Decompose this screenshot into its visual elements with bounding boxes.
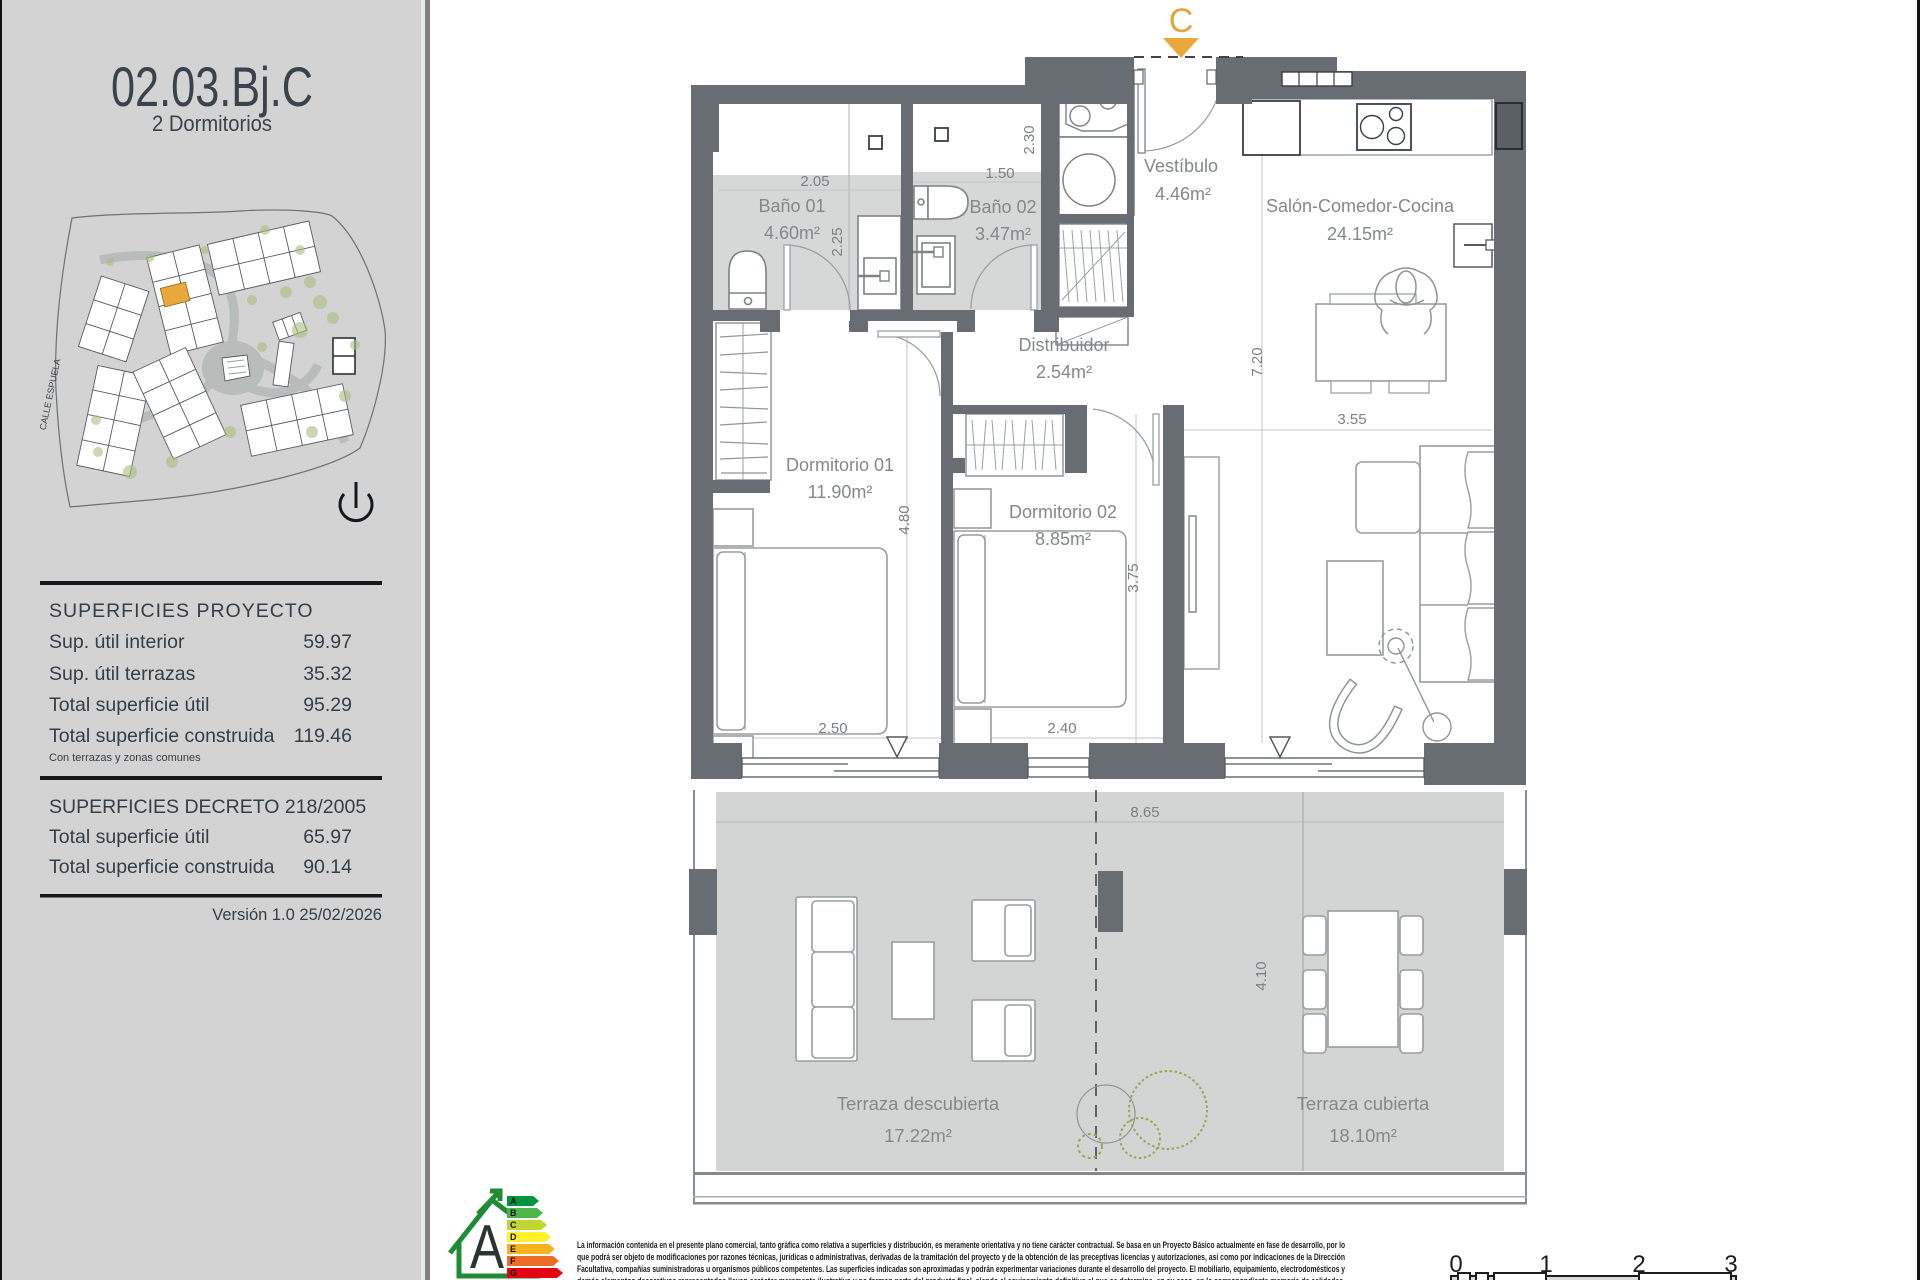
- svg-text:Baño 01: Baño 01: [758, 196, 825, 216]
- svg-text:4.60m²: 4.60m²: [764, 223, 820, 243]
- svg-text:B: B: [510, 1208, 517, 1218]
- svg-text:La información contenida en el: La información contenida en el presente …: [577, 1240, 1345, 1250]
- svg-text:C: C: [510, 1220, 517, 1230]
- svg-text:Terraza cubierta: Terraza cubierta: [1297, 1093, 1430, 1114]
- svg-text:11.90m²: 11.90m²: [808, 482, 873, 502]
- svg-text:Dormitorio 01: Dormitorio 01: [786, 455, 894, 475]
- svg-text:SUPERFICIES PROYECTO: SUPERFICIES PROYECTO: [49, 600, 314, 622]
- svg-text:G: G: [510, 1268, 517, 1278]
- svg-text:2.25: 2.25: [829, 227, 846, 256]
- svg-text:que podrá ser objeto de modifi: que podrá ser objeto de modificaciones p…: [577, 1252, 1345, 1262]
- svg-text:65.97: 65.97: [303, 826, 352, 848]
- svg-text:C: C: [1169, 2, 1194, 40]
- svg-text:Salón-Comedor-Cocina: Salón-Comedor-Cocina: [1266, 196, 1455, 216]
- svg-text:90.14: 90.14: [303, 856, 352, 878]
- svg-text:A: A: [510, 1196, 517, 1206]
- svg-text:A: A: [470, 1213, 505, 1280]
- svg-text:17.22m²: 17.22m²: [884, 1125, 952, 1146]
- svg-text:SUPERFICIES DECRETO 218/2005: SUPERFICIES DECRETO 218/2005: [49, 796, 366, 818]
- svg-text:1.50: 1.50: [985, 165, 1014, 182]
- svg-text:Total superficie construida: Total superficie construida: [49, 725, 275, 747]
- svg-text:Baño 02: Baño 02: [969, 197, 1036, 217]
- svg-text:4.46m²: 4.46m²: [1155, 184, 1211, 204]
- svg-text:2.50: 2.50: [818, 720, 847, 737]
- svg-text:119.46: 119.46: [294, 725, 352, 747]
- svg-text:Vestíbulo: Vestíbulo: [1144, 156, 1218, 176]
- svg-text:3.75: 3.75: [1125, 563, 1142, 592]
- svg-text:Versión 1.0 25/02/2026: Versión 1.0 25/02/2026: [212, 906, 382, 924]
- svg-text:59.97: 59.97: [303, 631, 352, 653]
- svg-text:Total superficie útil: Total superficie útil: [49, 826, 209, 848]
- svg-text:4.80: 4.80: [896, 505, 913, 534]
- svg-text:2.30: 2.30: [1021, 125, 1038, 154]
- svg-text:demás elementos decorativos re: demás elementos decorativos representado…: [577, 1276, 1345, 1280]
- svg-text:Dormitorio 02: Dormitorio 02: [1009, 502, 1117, 522]
- svg-text:35.32: 35.32: [303, 663, 352, 685]
- svg-text:7.20: 7.20: [1249, 347, 1266, 376]
- svg-text:Con terrazas y zonas comunes: Con terrazas y zonas comunes: [49, 752, 201, 764]
- svg-text:3.47m²: 3.47m²: [975, 224, 1031, 244]
- svg-text:2.40: 2.40: [1047, 720, 1076, 737]
- svg-text:Facultativa, compañías suminis: Facultativa, compañías suministradoras u…: [577, 1264, 1346, 1274]
- svg-text:Total superficie construida: Total superficie construida: [49, 856, 275, 878]
- svg-text:D: D: [510, 1232, 517, 1242]
- svg-text:18.10m²: 18.10m²: [1329, 1125, 1397, 1146]
- svg-text:8.85m²: 8.85m²: [1035, 529, 1091, 549]
- svg-text:4.10: 4.10: [1253, 961, 1270, 990]
- svg-text:2.05: 2.05: [800, 173, 829, 190]
- svg-text:3.55: 3.55: [1337, 411, 1366, 428]
- svg-text:24.15m²: 24.15m²: [1327, 224, 1393, 244]
- svg-text:95.29: 95.29: [303, 694, 352, 716]
- svg-text:Sup. útil terrazas: Sup. útil terrazas: [49, 663, 196, 685]
- svg-text:02.03.Bj.C: 02.03.Bj.C: [111, 55, 313, 118]
- svg-text:8.65: 8.65: [1130, 804, 1159, 821]
- svg-text:E: E: [510, 1244, 516, 1254]
- svg-text:Terraza descubierta: Terraza descubierta: [837, 1093, 1000, 1114]
- svg-text:2.54m²: 2.54m²: [1036, 362, 1092, 382]
- svg-text:F: F: [510, 1256, 516, 1266]
- svg-text:2 Dormitorios: 2 Dormitorios: [152, 111, 272, 136]
- svg-text:Total superficie útil: Total superficie útil: [49, 694, 209, 716]
- svg-text:Sup. útil interior: Sup. útil interior: [49, 631, 185, 653]
- svg-text:Distribuidor: Distribuidor: [1018, 335, 1109, 355]
